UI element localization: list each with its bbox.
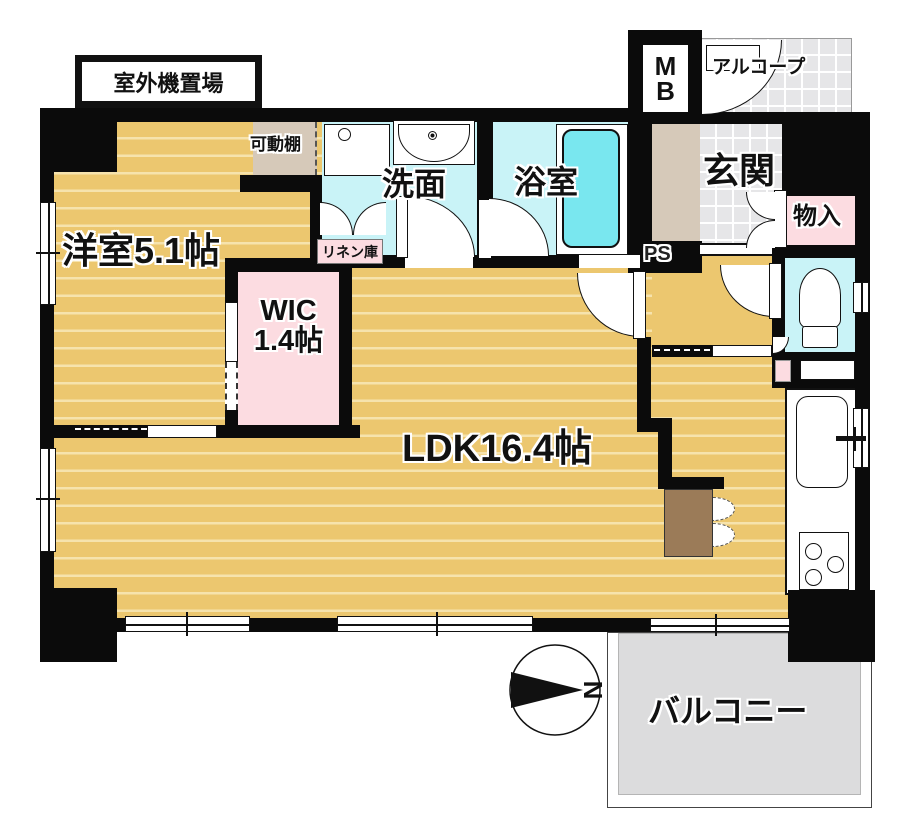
burner-2	[827, 556, 844, 573]
linen-label-box: リネン庫	[317, 239, 383, 264]
kitchen-sink	[796, 396, 848, 488]
pipe-space-label: PS	[644, 244, 671, 265]
wall-kitchen-4	[658, 477, 724, 489]
outdoor-unit-box: 室外機置場	[75, 55, 262, 108]
wall-bottom-3	[533, 618, 650, 632]
meter-box: M B	[643, 45, 688, 112]
washroom-label: 洗面	[382, 168, 446, 202]
window-mullion	[36, 252, 60, 254]
ldk-label: LDK16.4帖	[402, 430, 592, 470]
wall-kitchen-1	[637, 337, 651, 430]
kitchen-faucet-tick	[853, 427, 856, 451]
ldk-doorway	[579, 255, 640, 268]
wall-mb-divider	[688, 38, 702, 115]
wic-wall-right	[339, 258, 352, 438]
meter-box-label-b: B	[656, 79, 675, 104]
wall-bottom-1	[40, 618, 125, 632]
floorplan: 室外機置場 M B 洋室5.1帖 WIC 1.4帖 LDK16.4帖 洗面 浴室…	[0, 0, 909, 830]
washer-drain	[338, 128, 351, 141]
wall-entrance-top	[628, 112, 870, 124]
wic-label-line2: 1.4帖	[238, 326, 339, 356]
vanity-faucet	[428, 131, 437, 140]
entrance-label: 玄関	[703, 152, 775, 190]
kitchen-faucet	[836, 436, 866, 441]
toilet-door-leaf	[769, 263, 782, 319]
wall-top	[40, 108, 652, 122]
storage-door-leaf	[774, 190, 787, 248]
wic-label: WIC 1.4帖	[238, 296, 339, 357]
alcove-label: アルコープ	[712, 58, 805, 78]
hall-sliding-door	[712, 345, 772, 357]
window-east-toilet	[853, 282, 869, 313]
compass-north-label: N	[578, 681, 605, 700]
burner-1	[805, 543, 822, 560]
toilet-corner-sink	[775, 360, 791, 382]
window-mullion	[36, 498, 60, 500]
wall-right	[855, 115, 870, 662]
toilet-tank	[802, 326, 838, 348]
balcony-label: バルコニー	[648, 695, 807, 729]
window-south-2	[337, 616, 533, 632]
burner-3	[805, 569, 822, 586]
outdoor-unit-label: 室外機置場	[113, 66, 223, 98]
bathroom-label: 浴室	[514, 166, 578, 200]
movable-shelf-label: 可動棚	[250, 136, 301, 154]
entrance-step	[652, 122, 700, 243]
wall-bottom-2	[250, 618, 337, 632]
wall-corner-topleft	[40, 108, 117, 172]
window-south-3	[650, 618, 790, 632]
wic-door	[225, 302, 238, 362]
window-mullion	[186, 612, 188, 636]
western-sliding-track	[75, 428, 147, 437]
meter-box-label-m: M	[655, 54, 677, 79]
western-sliding-door	[147, 425, 217, 438]
washing-machine-pan	[324, 124, 390, 176]
window-mullion	[715, 614, 717, 636]
western-room-label: 洋室5.1帖	[62, 232, 220, 270]
wic-door-track	[225, 362, 238, 410]
window-west-ldk	[40, 448, 56, 552]
wall-shelf-bottom	[240, 175, 322, 192]
toilet-bowl	[799, 268, 841, 330]
linen-label: リネン庫	[322, 242, 378, 262]
washroom-door-leaf	[396, 196, 408, 258]
toilet-shelf	[800, 360, 855, 380]
wic-label-line1: WIC	[238, 296, 339, 326]
storage-label: 物入	[793, 204, 841, 229]
wall-left	[40, 108, 54, 662]
kitchen-island-counter	[664, 489, 713, 557]
compass: N	[505, 638, 605, 742]
hall-sliding-track	[654, 349, 710, 356]
window-mullion	[436, 612, 438, 636]
ldk-door-leaf	[633, 271, 646, 339]
